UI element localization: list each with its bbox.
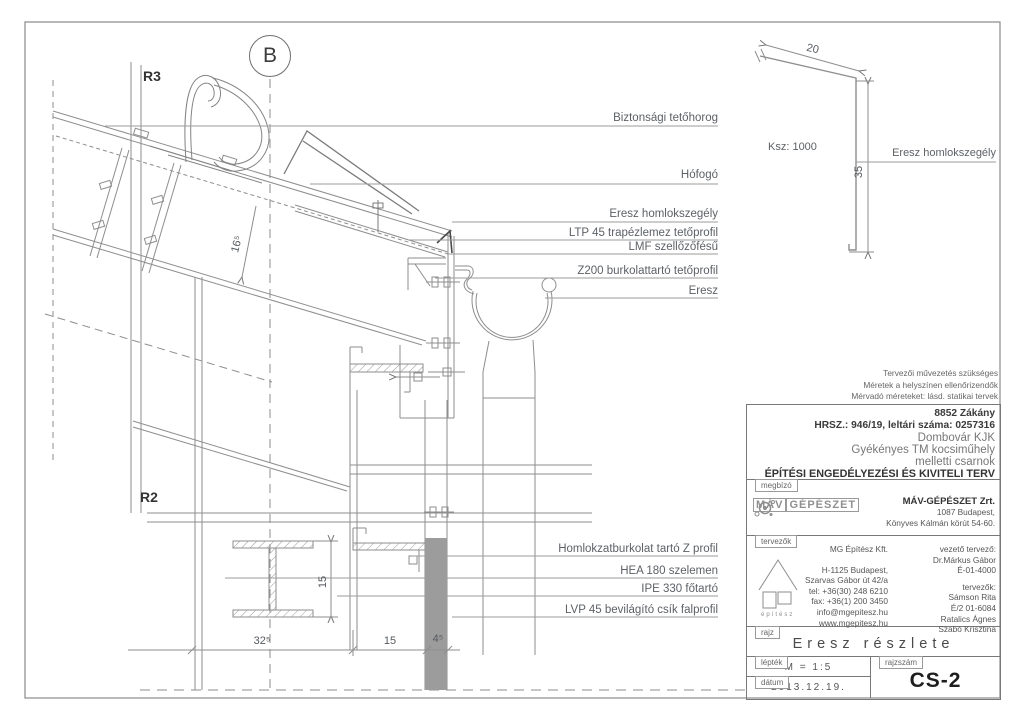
office-name: MG Építész Kft. — [758, 544, 888, 555]
flashing-dim-35: 35 — [853, 166, 865, 178]
date-tab: dátum — [755, 676, 789, 689]
client-section: megbízó MÁV GÉPÉSZET MÁV-GÉPÉSZET Zrt. 1… — [747, 480, 1000, 536]
dimension-chain — [128, 630, 460, 656]
grid-label-r2: R2 — [140, 489, 158, 505]
roof-assembly — [53, 111, 452, 345]
sheet-number-cell: rajzszám CS-2 — [871, 657, 1000, 698]
drawing-title: Eresz részlete — [747, 627, 1000, 652]
callout-eaves-flashing: Eresz homlokszegély — [458, 208, 718, 220]
callout-lvp45: LVP 45 bevilágító csík falprofil — [458, 604, 718, 616]
date-cell: dátum 2013.12.19. — [747, 677, 870, 697]
gutter-icon — [455, 266, 556, 655]
drawing-title-tab: rajz — [755, 626, 780, 639]
project-line2: Gyékényes TM kocsiműhely — [747, 444, 995, 456]
office-addr: H-1125 Budapest, — [758, 565, 888, 576]
designers-columns: MG Építész Kft. H-1125 Budapest, Szarvas… — [758, 544, 996, 635]
callout-z200: Z200 burkolattartó tetőprofil — [458, 265, 718, 277]
snow-guard-icon — [284, 131, 419, 232]
dim-beam-height: 15 — [317, 576, 329, 588]
team-member-id: É/2 01-6084 — [904, 603, 996, 614]
dim-15: 15 — [384, 635, 396, 647]
mav-gepeszet-logo: MÁV GÉPÉSZET — [753, 498, 859, 512]
note-line: Tervezői művezetés szükséges — [746, 368, 998, 380]
client-addr1: 1087 Budapest, — [886, 507, 995, 518]
lead-designer-id: É-01-4000 — [904, 565, 996, 576]
office-addr: Szarvas Gábor út 42/a — [758, 575, 888, 586]
scale-tab: lépték — [755, 656, 788, 669]
scale-date-column: lépték M = 1:5 dátum 2013.12.19. — [747, 657, 871, 698]
client-tab: megbízó — [755, 479, 798, 492]
office-email: info@mgepitesz.hu — [758, 607, 888, 618]
dim-4-5: 4⁵ — [433, 633, 444, 645]
safety-roof-hook-icon — [150, 75, 269, 183]
section-marker-b-label: B — [263, 44, 277, 68]
drawing-sheet: 16⁵ 15 32⁵ 15 4⁵ 20 35 B R3 R2 Biztonság… — [0, 0, 1024, 724]
office-addr: fax: +36(1) 200 3450 — [758, 596, 888, 607]
lead-designer-label: vezető tervező: — [904, 544, 996, 555]
section-marker-b: B — [249, 35, 291, 77]
lead-designer-name: Dr.Márkus Gábor — [904, 555, 996, 566]
callout-ipe330: IPE 330 főtartó — [458, 583, 718, 595]
callout-ltp45: LTP 45 trapézlemez tetőprofil — [458, 227, 718, 239]
gear-icon — [753, 498, 777, 518]
sheet-number-tab: rajzszám — [879, 656, 923, 669]
project-line1: Dombovár KJK — [747, 432, 995, 444]
scale-cell: lépték M = 1:5 — [747, 657, 870, 677]
callout-gutter: Eresz — [458, 285, 718, 297]
team-member: Ratalics Ágnes — [904, 614, 996, 625]
team-column: vezető tervező: Dr.Márkus Gábor É-01-400… — [904, 544, 996, 635]
screw-icon — [409, 556, 417, 564]
team-label: tervezők: — [904, 582, 996, 593]
gepeszet-logo-text: GÉPÉSZET — [786, 498, 859, 512]
project-info: 8852 Zákány HRSZ.: 946/19, leltári száma… — [747, 405, 1000, 480]
scale-number-row: lépték M = 1:5 dátum 2013.12.19. rajzszá… — [747, 657, 1000, 698]
client-address: MÁV-GÉPÉSZET Zrt. 1087 Budapest, Könyves… — [886, 496, 995, 529]
team-member: Sámson Rita — [904, 592, 996, 603]
designers-section: tervezők építész MG Építész Kft. H-1125 … — [747, 536, 1000, 627]
wall-panel-fill — [425, 538, 447, 690]
project-parcel: HRSZ.: 946/19, leltári száma: 0257316 — [747, 420, 995, 432]
office-column: MG Építész Kft. H-1125 Budapest, Szarvas… — [758, 544, 888, 635]
callout-safety-hook: Biztonsági tetőhorog — [458, 112, 718, 124]
dim-32-5: 32⁵ — [254, 635, 271, 647]
callout-hea180: HEA 180 szelemen — [458, 565, 718, 577]
callout-snow-guard: Hófogó — [458, 169, 718, 181]
office-addr: tel: +36(30) 248 6210 — [758, 586, 888, 597]
project-city: 8852 Zákány — [747, 408, 995, 420]
grid-label-r3: R3 — [143, 68, 161, 84]
title-block-notes: Tervezői művezetés szükséges Méretek a h… — [746, 368, 998, 403]
flashing-callout: Eresz homlokszegély — [836, 147, 996, 159]
bolt-icon — [424, 277, 460, 517]
note-line: Méretek a helyszínen ellenőrizendők — [746, 380, 998, 392]
roof-angle-leader — [242, 206, 256, 277]
client-name: MÁV-GÉPÉSZET Zrt. — [886, 496, 995, 507]
client-addr2: Könyves Kálmán körút 54-60. — [886, 518, 995, 529]
dim-roof-angle: 16⁵ — [229, 235, 245, 254]
flashing-dim-20: 20 — [805, 42, 820, 56]
callout-lmf: LMF szellőzőfésű — [458, 241, 718, 253]
drawing-title-section: rajz Eresz részlete — [747, 627, 1000, 657]
title-block: 8852 Zákány HRSZ.: 946/19, leltári száma… — [746, 404, 1001, 700]
note-line: Mérvadó méreteket: lásd. statikai tervek — [746, 391, 998, 403]
project-line3: melletti csarnok — [747, 456, 995, 468]
callout-z-profile: Homlokzatburkolat tartó Z profil — [458, 543, 718, 555]
flashing-ksz-label: Ksz: 1000 — [768, 141, 817, 153]
